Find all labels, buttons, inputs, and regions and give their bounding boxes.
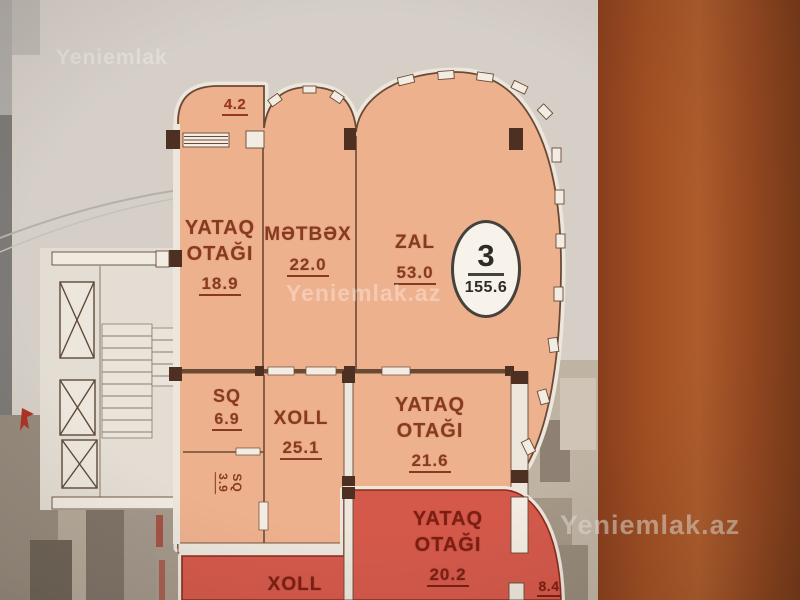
building-core bbox=[40, 248, 178, 510]
door-opening bbox=[306, 367, 336, 375]
room-area: 18.9 bbox=[199, 274, 240, 296]
room-area: 22.0 bbox=[287, 255, 328, 277]
side-panel bbox=[598, 0, 800, 600]
entrance-door bbox=[156, 251, 169, 267]
room-area: 20.2 bbox=[427, 565, 468, 587]
door-opening bbox=[382, 367, 410, 375]
room-label-sq-1: SQ 6.9 bbox=[194, 385, 260, 429]
room-name: MƏTBƏX bbox=[258, 222, 358, 248]
room-name: YATAQ OTAĞI bbox=[386, 506, 510, 558]
room-name: SQ bbox=[230, 472, 244, 494]
floorplan-photo: 4.2 YATAQ OTAĞI 18.9 MƏTBƏX 22.0 ZAL 53.… bbox=[0, 0, 800, 600]
window-slot bbox=[511, 497, 528, 553]
room-area: 53.0 bbox=[394, 263, 435, 285]
apartment-badge: 3 155.6 bbox=[451, 220, 521, 318]
room-label-zal: ZAL 53.0 bbox=[382, 230, 448, 283]
apartment-total-area: 155.6 bbox=[465, 279, 508, 297]
room-area: 21.6 bbox=[409, 451, 450, 473]
door-opening bbox=[259, 502, 268, 530]
room-name: ZAL bbox=[382, 230, 448, 256]
dimension-value: 8.4 bbox=[537, 578, 562, 597]
room-name: XOLL bbox=[262, 408, 340, 430]
balcony-dimension-label: 4.2 bbox=[205, 96, 265, 113]
room-name: XOLL bbox=[258, 572, 332, 598]
room-label-xoll-1: XOLL 25.1 bbox=[262, 408, 340, 458]
room-name: YATAQ OTAĞI bbox=[170, 215, 270, 267]
room-name: SQ bbox=[194, 385, 260, 407]
door-opening bbox=[268, 367, 294, 375]
room-label-metbex: MƏTBƏX 22.0 bbox=[258, 222, 358, 275]
room-area: 25.1 bbox=[280, 438, 321, 460]
room-name: YATAQ OTAĞI bbox=[370, 392, 490, 444]
room-label-yataq-otagi-1: YATAQ OTAĞI 18.9 bbox=[170, 215, 270, 294]
room-label-yataq-otagi-2: YATAQ OTAĞI 21.6 bbox=[370, 392, 490, 471]
badge-divider bbox=[468, 273, 504, 276]
apartment-number: 3 bbox=[477, 241, 494, 271]
room-area: 3.9 bbox=[215, 472, 230, 494]
room-label-neighbor-xoll: XOLL bbox=[258, 572, 332, 598]
room-label-neighbor-yataq-otagi: YATAQ OTAĞI 20.2 bbox=[386, 506, 510, 585]
elevator-shaft bbox=[60, 282, 97, 488]
balcony-dimension-value: 4.2 bbox=[222, 96, 248, 116]
room-area: 6.9 bbox=[212, 411, 241, 431]
neighbor-dimension-label: 8.4 bbox=[527, 578, 571, 594]
room-label-sq-2-rotated: SQ 3.9 bbox=[200, 452, 260, 514]
